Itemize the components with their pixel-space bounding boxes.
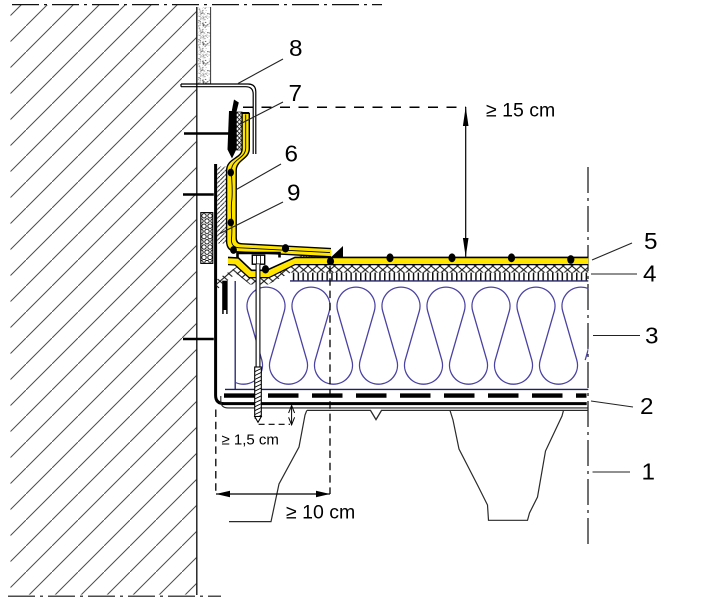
svg-text:7: 7 [289, 80, 303, 106]
svg-text:1: 1 [642, 459, 656, 485]
svg-text:≥ 10 cm: ≥ 10 cm [286, 502, 355, 524]
svg-text:9: 9 [287, 180, 301, 206]
svg-text:≥ 1,5 cm: ≥ 1,5 cm [222, 432, 279, 449]
svg-text:≥ 15 cm: ≥ 15 cm [486, 100, 555, 122]
svg-text:8: 8 [289, 35, 303, 61]
svg-text:5: 5 [644, 228, 658, 254]
svg-text:6: 6 [285, 141, 299, 167]
svg-text:4: 4 [643, 261, 657, 287]
svg-text:2: 2 [640, 393, 654, 419]
svg-text:3: 3 [645, 323, 659, 349]
